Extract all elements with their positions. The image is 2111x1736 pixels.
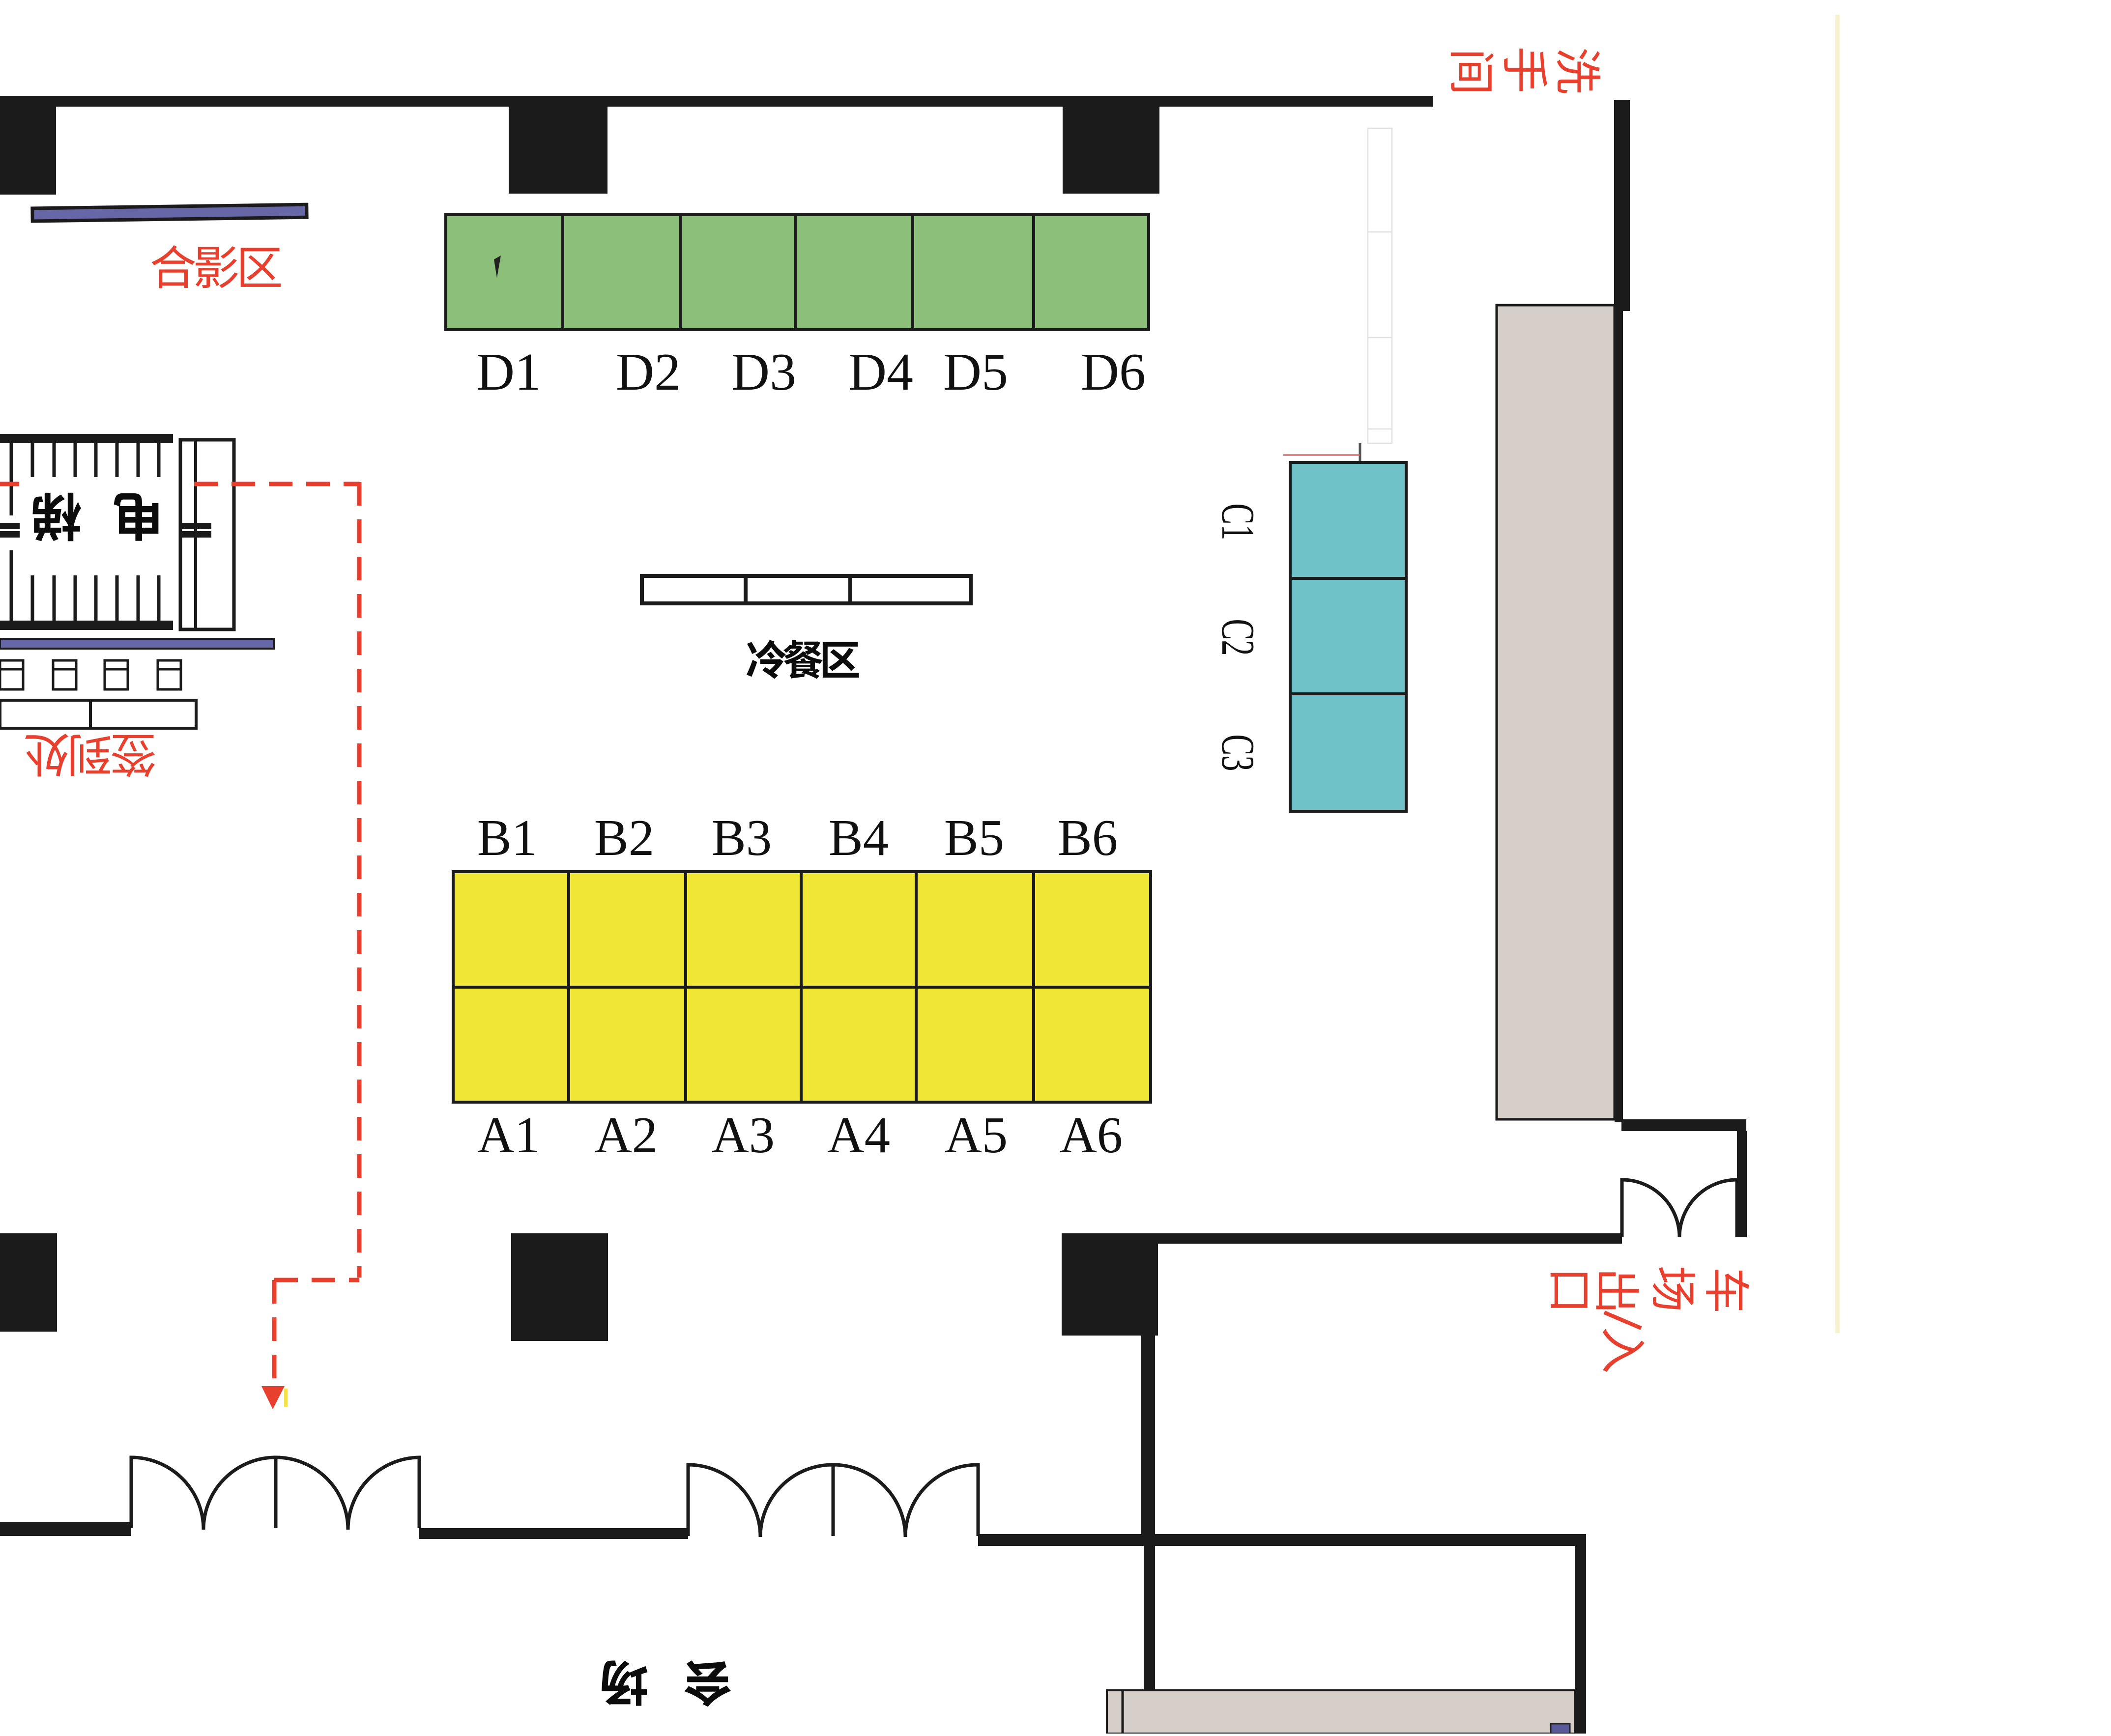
svg-text:C1: C1 [1212, 504, 1264, 541]
svg-text:B6: B6 [1058, 809, 1118, 866]
svg-text:B2: B2 [594, 809, 655, 866]
svg-text:C2: C2 [1212, 619, 1264, 656]
svg-text:B3: B3 [712, 809, 772, 866]
svg-text:A6: A6 [1060, 1106, 1123, 1164]
svg-text:C3: C3 [1212, 735, 1264, 771]
svg-text:A2: A2 [595, 1106, 658, 1164]
svg-text:B5: B5 [944, 809, 1005, 866]
svg-text:D6: D6 [1081, 343, 1146, 401]
svg-text:D2: D2 [616, 343, 681, 401]
svg-text:D5: D5 [943, 343, 1008, 401]
svg-text:D1: D1 [476, 343, 541, 401]
svg-text:A1: A1 [477, 1106, 540, 1164]
svg-text:D3: D3 [731, 343, 796, 401]
svg-text:B1: B1 [477, 809, 538, 866]
svg-text:B4: B4 [829, 809, 889, 866]
svg-text:A4: A4 [827, 1106, 890, 1164]
svg-text:A5: A5 [945, 1106, 1008, 1164]
svg-text:D4: D4 [848, 343, 913, 401]
svg-text:A3: A3 [712, 1106, 775, 1164]
